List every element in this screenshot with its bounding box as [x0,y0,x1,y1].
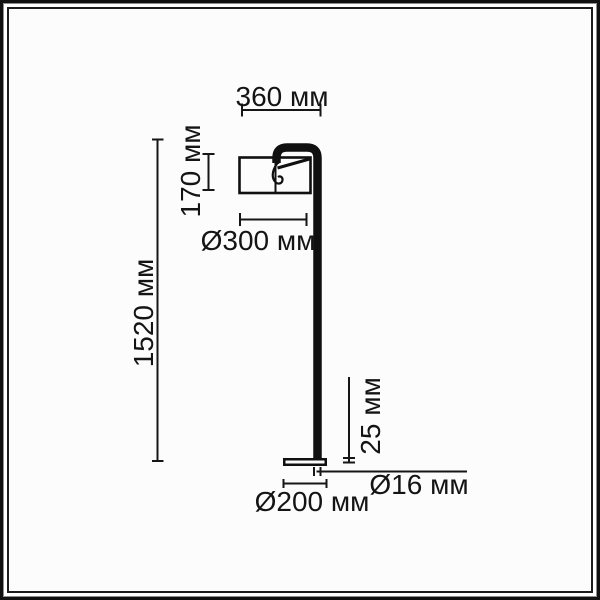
dimension-head-width: 360 мм [236,81,329,117]
lamp-drawing [240,148,326,465]
diagram-canvas: 360 мм 170 мм Ø300 мм 1520 мм [0,0,600,600]
dim-label-shade-height: 170 мм [175,125,206,218]
dimension-shade-height: 170 мм [175,125,215,218]
dim-label-head-width: 360 мм [236,81,329,112]
dimension-total-height: 1520 мм [128,140,164,462]
dimension-base-height: 25 мм [343,377,386,464]
dimension-base-diameter: Ø200 мм [255,479,370,517]
dim-label-base-diameter: Ø200 мм [255,486,370,517]
lamp-base [284,459,326,465]
dim-label-shade-diameter: Ø300 мм [201,225,316,256]
dimension-shade-diameter: Ø300 мм [201,213,316,256]
lamp-dimension-diagram: 360 мм 170 мм Ø300 мм 1520 мм [0,0,600,600]
dim-label-total-height: 1520 мм [128,259,159,368]
shade-bracket-diagonal [278,159,310,168]
dim-label-pole-diameter: Ø16 мм [369,469,468,500]
bulb-socket-hook [273,162,283,184]
dim-label-base-height: 25 мм [355,377,386,454]
